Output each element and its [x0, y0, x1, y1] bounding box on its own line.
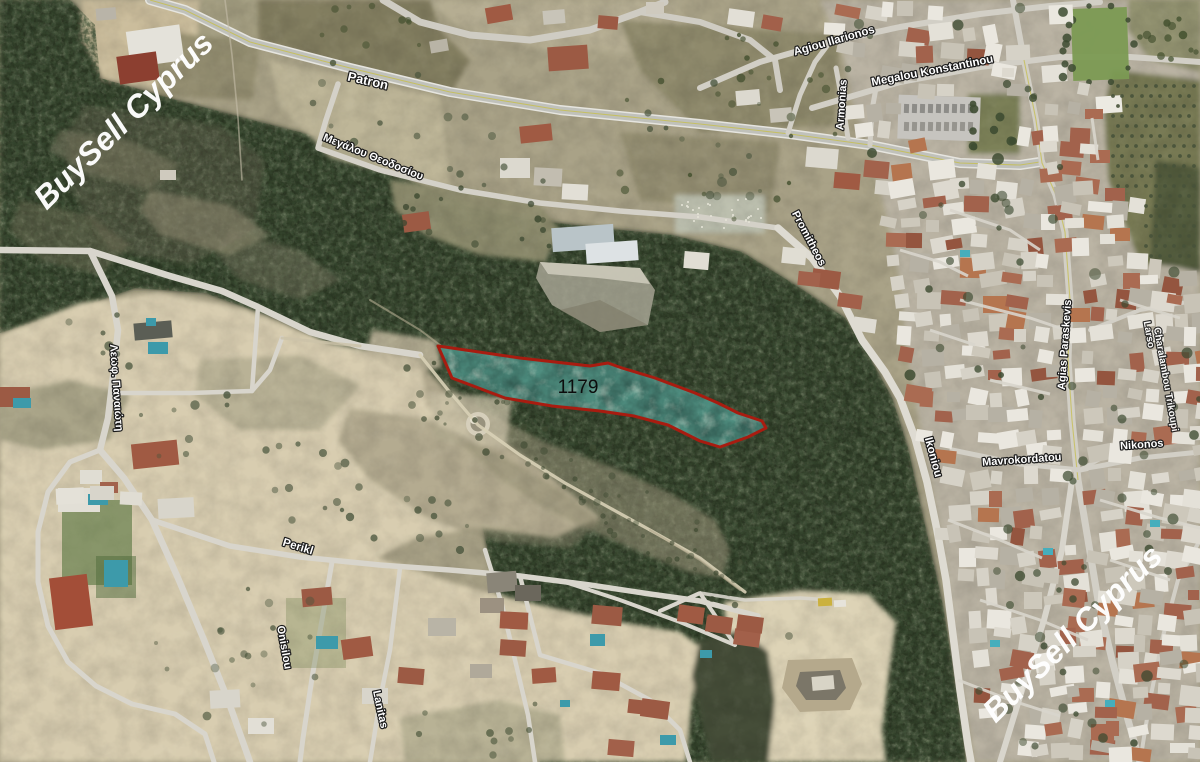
svg-text:1179: 1179 [558, 377, 599, 398]
